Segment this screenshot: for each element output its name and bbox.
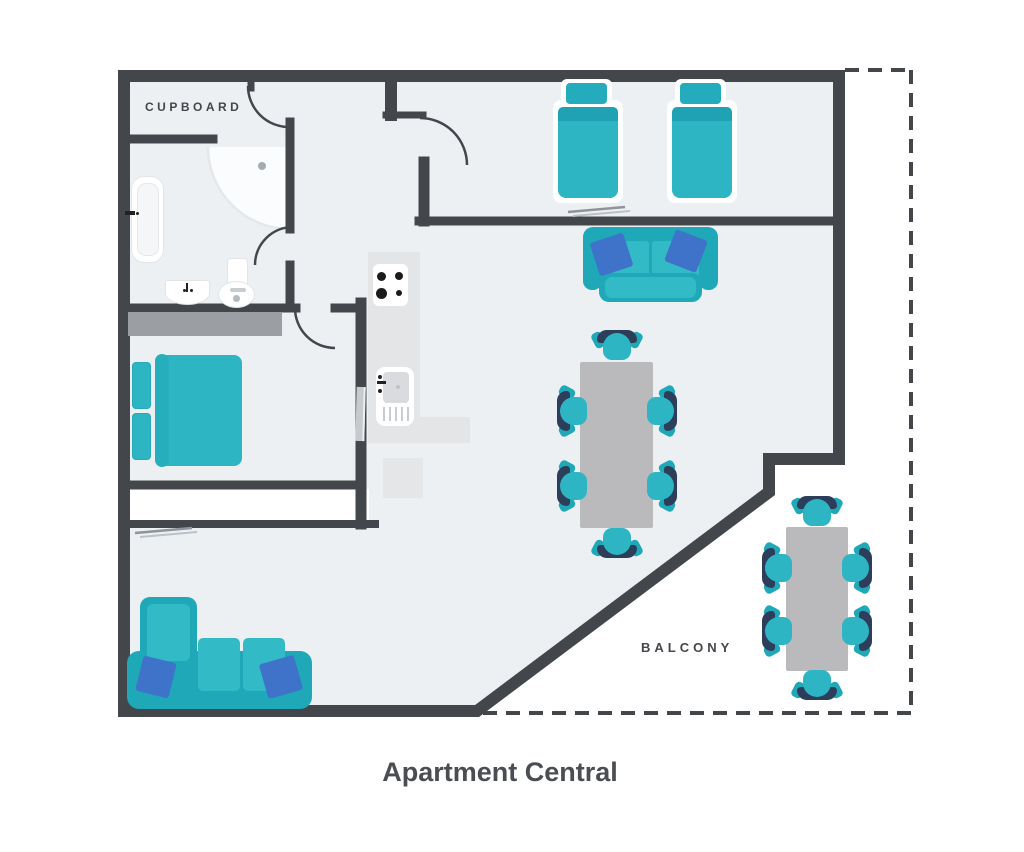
stove [373,264,408,306]
balcony-chair [762,609,794,653]
cupboard-label: CUPBOARD [145,100,242,114]
floor-plan-svg [0,0,1024,852]
dining-chair [645,464,677,508]
dining-chair [645,389,677,433]
dining-chair [557,464,589,508]
drainer-icon [383,407,409,421]
wardrobe [128,312,282,336]
kitchen-appliance [383,458,423,498]
kitchen-counter-return [420,417,470,443]
balcony-chair [795,668,839,700]
burner-icon [376,288,387,299]
balcony-chair [840,546,872,590]
balcony-table [786,527,848,671]
dining-chair [595,330,639,362]
page-title: Apartment Central [0,757,1000,788]
burner-icon [396,290,402,296]
balcony-chair [762,546,794,590]
recess-void [124,489,369,520]
bed-pillow [132,362,151,409]
faucet-icon [377,381,386,384]
dining-table [580,362,653,528]
bathtub [131,176,164,263]
burner-icon [377,272,386,281]
bed-pillow [680,83,721,104]
dining-chair [595,526,639,558]
floor-plan: CUPBOARD BALCONY Apartment Central [0,0,1024,852]
bed-pillow [566,83,607,104]
burner-icon [395,272,403,280]
bath-faucet-icon [125,211,135,215]
balcony-chair [840,609,872,653]
balcony-label: BALCONY [641,640,733,655]
wall-mirror-icon [355,387,365,441]
bed-pillow [132,413,151,460]
shower-drain-icon [258,162,266,170]
duvet-fold [155,354,169,467]
dining-chair [557,389,589,433]
kitchen-sink [376,367,414,426]
balcony-chair [795,496,839,528]
